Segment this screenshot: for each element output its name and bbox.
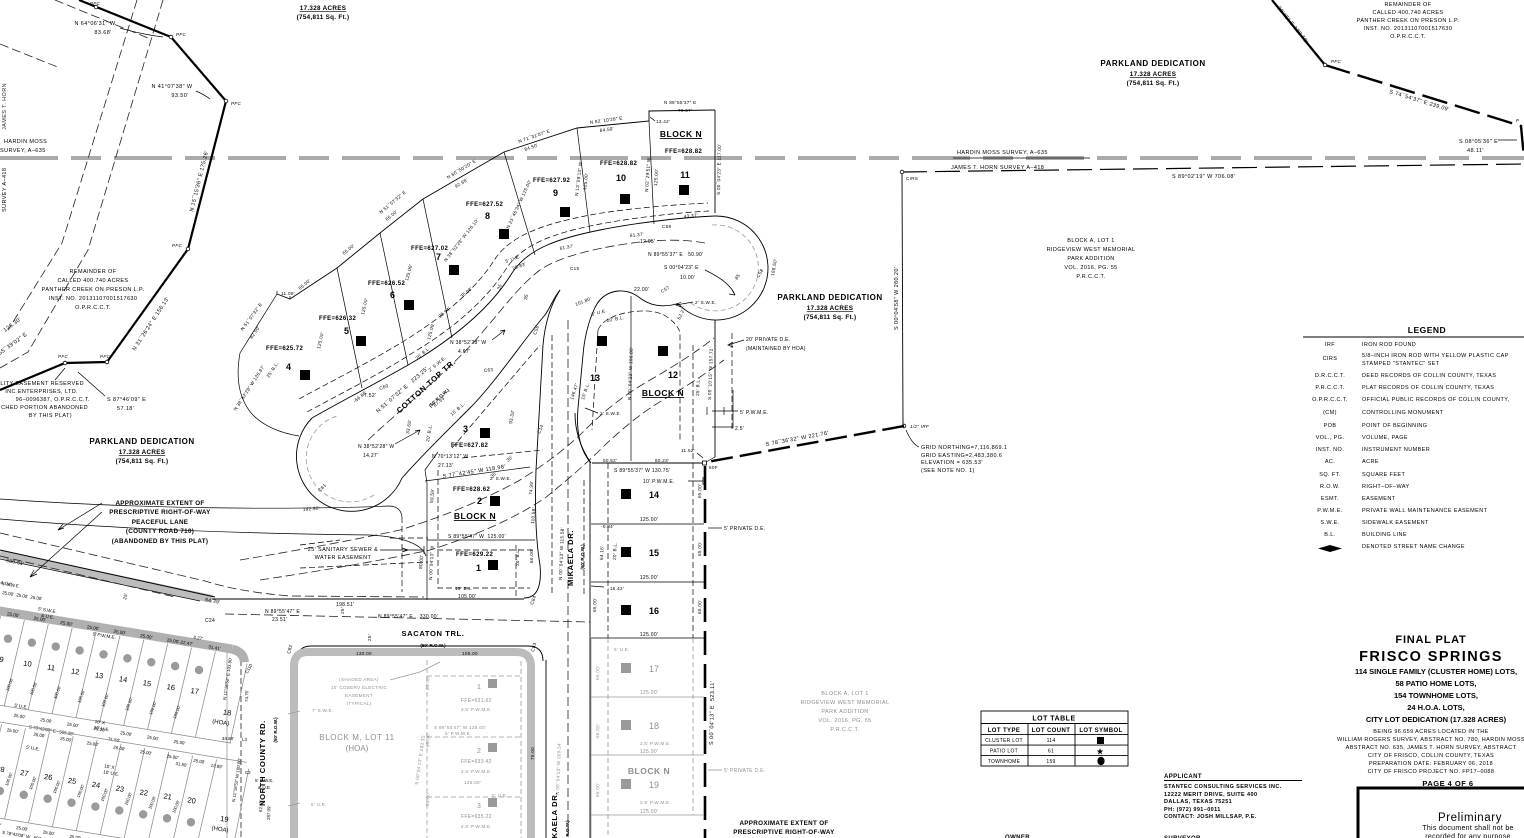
svg-text:60F: 60F: [709, 465, 718, 470]
svg-text:5' U.E.: 5' U.E.: [492, 793, 508, 798]
svg-text:15: 15: [142, 678, 152, 688]
svg-text:PFC: PFC: [90, 1, 100, 6]
svg-text:15: 15: [649, 548, 659, 558]
svg-text:12: 12: [668, 370, 678, 380]
svg-text:ABSTRACT NO. 635, JAMES T.: ABSTRACT NO. 635, JAMES T. HORN SURVEY, …: [1346, 745, 1517, 751]
svg-text:17: 17: [649, 664, 659, 674]
svg-text:CITY OF FRISCO, COLLIN COU: CITY OF FRISCO, COLLIN COUNTY, TEXAS: [1368, 753, 1494, 759]
svg-text:L3: L3: [242, 737, 247, 742]
svg-text:(TYPICAL): (TYPICAL): [347, 701, 372, 706]
svg-text:HARDIN MOSS: HARDIN MOSS: [4, 139, 47, 145]
svg-text:P.R.C.C.T.: P.R.C.C.T.: [830, 727, 859, 733]
svg-text:FFE=628.82: FFE=628.82: [600, 161, 637, 167]
svg-text:130.00: 130.00: [356, 651, 372, 656]
svg-text:C63: C63: [484, 367, 494, 373]
svg-text:LITY EASEMENT RESERVED: LITY EASEMENT RESERVED: [0, 381, 84, 387]
svg-text:DENOTED STREET NAME CHANGE: DENOTED STREET NAME CHANGE: [1362, 544, 1465, 550]
svg-text:(MAINTAINED BY HOA): (MAINTAINED BY HOA): [746, 346, 806, 352]
svg-text:FFE=629.22: FFE=629.22: [456, 552, 493, 558]
svg-text:SQUARE FEET: SQUARE FEET: [1362, 472, 1405, 478]
svg-text:S.W.E.: S.W.E.: [1320, 520, 1339, 526]
svg-text:APPROXIMATE EXTENT OF: APPROXIMATE EXTENT OF: [739, 820, 828, 827]
svg-text:WILLIAM ROGERS SURVEY, ABST: WILLIAM ROGERS SURVEY, ABSTRACT NO. 780,…: [1337, 737, 1524, 743]
svg-text:CLUSTER LOT: CLUSTER LOT: [985, 738, 1023, 744]
svg-text:CITY OF FRISCO PROJECT NO.: CITY OF FRISCO PROJECT NO. FP17–0088: [1368, 769, 1495, 775]
svg-text:N 70°13'12" W: N 70°13'12" W: [432, 454, 468, 460]
svg-text:PFC: PFC: [58, 354, 68, 359]
svg-text:2.5' P.W.M.E.: 2.5' P.W.M.E.: [461, 824, 492, 829]
svg-text:61: 61: [1048, 749, 1054, 755]
svg-text:LOT COUNT: LOT COUNT: [1032, 728, 1071, 734]
svg-text:(754,811 Sq. Ft.): (754,811 Sq. Ft.): [804, 314, 857, 321]
svg-text:S 00¯04'23" E 117.00': S 00¯04'23" E 117.00': [715, 144, 722, 195]
svg-text:5' PRIVATE D.E.: 5' PRIVATE D.E.: [724, 768, 765, 774]
svg-text:25' B.L.: 25' B.L.: [695, 378, 701, 396]
svg-text:-0.84': -0.84': [601, 524, 614, 529]
svg-text:11.52': 11.52': [681, 448, 695, 453]
svg-text:65.00': 65.00': [697, 484, 702, 498]
svg-text:105.00: 105.00: [462, 651, 478, 656]
svg-text:FFE=631.62: FFE=631.62: [461, 698, 492, 704]
svg-text:16: 16: [649, 606, 659, 616]
svg-text:(50' R.O.W.): (50' R.O.W.): [565, 820, 570, 838]
svg-text:1/2" IRF: 1/2" IRF: [910, 424, 930, 429]
svg-text:CIRS: CIRS: [906, 176, 918, 181]
svg-text:C2: C2: [245, 770, 251, 775]
svg-text:N 38°52'28" W: N 38°52'28" W: [358, 444, 394, 450]
svg-text:PANTHER CREEK ON PRESON L.: PANTHER CREEK ON PRESON L.P.: [1357, 18, 1460, 24]
svg-text:RIGHT–OF–WAY: RIGHT–OF–WAY: [1362, 484, 1410, 490]
svg-text:CONTACT: JOSH MILLSAP, P.E.: CONTACT: JOSH MILLSAP, P.E.: [1164, 814, 1257, 820]
svg-text:PH: (972) 991–0011: PH: (972) 991–0011: [1164, 807, 1221, 813]
svg-text:VOL., PG.: VOL., PG.: [1316, 435, 1345, 441]
svg-text:11.00': 11.00': [281, 291, 295, 296]
svg-text:(ABANDONED BY THIS PLAT): (ABANDONED BY THIS PLAT): [112, 538, 209, 545]
svg-text:D.R.C.C.T.: D.R.C.C.T.: [1315, 373, 1345, 379]
svg-text:65.00': 65.00': [425, 792, 430, 806]
svg-text:SURVEY, A–635: SURVEY, A–635: [0, 148, 46, 154]
svg-text:P.W.M.E.: P.W.M.E.: [1317, 508, 1342, 514]
svg-text:25.00': 25.00': [69, 834, 82, 838]
svg-text:S 89°55'47" W 125.00': S 89°55'47" W 125.00': [448, 534, 506, 540]
svg-text:N 41°07'38" W: N 41°07'38" W: [152, 84, 193, 90]
svg-text:IRON ROD FOUND: IRON ROD FOUND: [1362, 342, 1416, 348]
svg-text:(754,811 Sq. Ft.): (754,811 Sq. Ft.): [116, 458, 169, 465]
svg-text:10' COSERV ELECTRIC: 10' COSERV ELECTRIC: [331, 685, 388, 690]
svg-text:PFC: PFC: [231, 101, 241, 106]
svg-text:(754,811 Sq. Ft.): (754,811 Sq. Ft.): [297, 14, 350, 21]
svg-text:7' S.W.E.: 7' S.W.E.: [312, 708, 333, 713]
svg-text:INST. NO.: INST. NO.: [1316, 447, 1344, 453]
svg-text:20' B.L.: 20' B.L.: [515, 548, 520, 566]
svg-text:9: 9: [553, 188, 558, 198]
svg-text:CIRS: CIRS: [1323, 356, 1338, 362]
svg-text:FINAL PLAT: FINAL PLAT: [1395, 634, 1466, 646]
svg-text:FFE=625.72: FFE=625.72: [266, 346, 303, 352]
svg-text:58 PATIO HOME LOTS,: 58 PATIO HOME LOTS,: [1396, 679, 1477, 688]
svg-text:11: 11: [680, 170, 690, 180]
svg-text:FFE=633.42: FFE=633.42: [461, 759, 492, 765]
svg-text:65.00': 65.00': [595, 783, 600, 797]
svg-text:125.00': 125.00': [640, 690, 658, 696]
svg-text:3: 3: [477, 803, 481, 810]
svg-text:PFC: PFC: [176, 32, 186, 37]
svg-text:65.00': 65.00': [595, 724, 600, 738]
svg-text:O.P.R.C.C.T.: O.P.R.C.C.T.: [75, 305, 111, 311]
svg-text:S 08°05'36" E: S 08°05'36" E: [1459, 139, 1498, 145]
svg-text:125.00': 125.00': [640, 575, 658, 581]
svg-text:REMAINDER OF: REMAINDER OF: [1385, 2, 1432, 8]
svg-text:JAMES T. HORN SURVEY A–418: JAMES T. HORN SURVEY A–418: [951, 165, 1044, 171]
svg-text:11: 11: [47, 662, 56, 672]
svg-text:This document shall not be: This document shall not be: [1422, 825, 1513, 832]
svg-text:80.23': 80.23': [655, 458, 669, 463]
svg-text:114: 114: [1047, 738, 1056, 744]
svg-text:LOT TABLE: LOT TABLE: [1032, 716, 1075, 723]
svg-text:10' P.W.M.E.: 10' P.W.M.E.: [643, 479, 675, 485]
svg-text:5' U.E.: 5' U.E.: [614, 647, 630, 652]
svg-text:2.5' P.W.M.E.: 2.5' P.W.M.E.: [640, 800, 671, 805]
svg-text:2.5' P.W.M.E.: 2.5' P.W.M.E.: [640, 741, 671, 746]
svg-text:2: 2: [477, 496, 482, 506]
svg-text:114 SINGLE FAMILY (CLUSTER HOM: 114 SINGLE FAMILY (CLUSTER HOME) LOTS,: [1355, 667, 1517, 676]
svg-text:2' S.W.E.: 2' S.W.E.: [695, 300, 716, 305]
svg-text:(COUNTY ROAD 710): (COUNTY ROAD 710): [126, 528, 194, 535]
svg-text:LEGEND: LEGEND: [1408, 325, 1446, 335]
svg-text:AC.: AC.: [1325, 459, 1335, 465]
svg-text:74.76': 74.76': [244, 690, 249, 702]
svg-text:35: 35: [523, 294, 529, 301]
svg-text:16: 16: [166, 682, 176, 692]
svg-text:2.5' P.W.M.E.: 2.5' P.W.M.E.: [461, 769, 492, 774]
svg-text:EASEMENT: EASEMENT: [1362, 496, 1396, 502]
svg-text:CALLED 400.740 ACRES: CALLED 400.740 ACRES: [1373, 10, 1444, 16]
svg-text:5' U.E.: 5' U.E.: [311, 802, 327, 807]
svg-text:LOT TYPE: LOT TYPE: [988, 728, 1021, 734]
svg-text:5' P.W.M.E.: 5' P.W.M.E.: [445, 731, 472, 736]
svg-text:105.00': 105.00': [458, 594, 476, 600]
svg-text:OFFICIAL PUBLIC RECORDS OF: OFFICIAL PUBLIC RECORDS OF COLLIN COUNTY…: [1362, 397, 1510, 403]
svg-text:(50' R.O.W.): (50' R.O.W.): [273, 717, 278, 743]
svg-text:FFE=627.52: FFE=627.52: [466, 202, 503, 208]
svg-text:20' PRIVATE D.E.: 20' PRIVATE D.E.: [746, 337, 790, 343]
svg-text:FFE=627.92: FFE=627.92: [533, 178, 570, 184]
svg-text:-16.42': -16.42': [608, 586, 624, 591]
svg-text:17.328 ACRES: 17.328 ACRES: [1130, 71, 1176, 78]
svg-text:22.00': 22.00': [634, 287, 649, 293]
svg-text:17.328 ACRES: 17.328 ACRES: [300, 5, 346, 12]
svg-text:S 00¯04'13" E 523.11': S 00¯04'13" E 523.11': [708, 681, 716, 745]
svg-text:287.09': 287.09': [266, 805, 272, 820]
svg-text:SURVEY A–418: SURVEY A–418: [2, 168, 8, 212]
svg-text:SQ. FT.: SQ. FT.: [1319, 472, 1341, 478]
svg-text:27.13': 27.13': [438, 463, 453, 469]
svg-text:INSTRUMENT NUMBER: INSTRUMENT NUMBER: [1362, 447, 1430, 453]
svg-text:BLOCK A, LOT 1: BLOCK A, LOT 1: [821, 691, 868, 697]
svg-text:21: 21: [163, 791, 173, 801]
svg-text:4: 4: [286, 362, 291, 372]
svg-text:159: 159: [1046, 759, 1055, 765]
svg-text:75.00: 75.00: [530, 747, 535, 760]
svg-text:C15: C15: [570, 266, 579, 271]
svg-text:PARK ADDITION: PARK ADDITION: [821, 709, 868, 715]
svg-text:EASEMENT: EASEMENT: [345, 693, 373, 698]
svg-text:(CM): (CM): [1323, 410, 1337, 416]
svg-text:C58: C58: [662, 224, 671, 229]
svg-text:CONTROLLING MONUMENT: CONTROLLING MONUMENT: [1362, 410, 1444, 416]
svg-text:6: 6: [390, 290, 395, 300]
svg-text:P.R.C.C.T.: P.R.C.C.T.: [1315, 385, 1344, 391]
svg-text:BLOCK N: BLOCK N: [642, 388, 684, 398]
svg-text:PARK ADDITION: PARK ADDITION: [1067, 256, 1114, 262]
svg-text:PFC: PFC: [1331, 59, 1341, 64]
svg-text:20' B.L.: 20' B.L.: [612, 542, 618, 560]
svg-text:19: 19: [649, 780, 659, 790]
svg-text:93.50': 93.50': [171, 93, 188, 99]
svg-text:23.51': 23.51': [272, 617, 287, 623]
svg-text:B.L.: B.L.: [1324, 532, 1335, 538]
svg-text:10.00': 10.00': [680, 275, 695, 281]
svg-text:MIKAELA DR.: MIKAELA DR.: [550, 792, 559, 838]
svg-text:48.11': 48.11': [1467, 148, 1484, 154]
svg-text:SACATON TRL.: SACATON TRL.: [401, 629, 464, 638]
svg-text:70.67': 70.67': [678, 108, 692, 113]
svg-text:13: 13: [94, 670, 104, 680]
svg-text:125.00': 125.00': [640, 517, 658, 523]
svg-text:PARKLAND DEDICATION: PARKLAND DEDICATION: [89, 437, 194, 446]
svg-text:WATER EASEMENT: WATER EASEMENT: [315, 555, 372, 561]
svg-text:PRESCRIPTIVE RIGHT-OF-WAY: PRESCRIPTIVE RIGHT-OF-WAY: [733, 829, 835, 836]
svg-text:26: 26: [43, 772, 53, 782]
svg-text:BLOCK N: BLOCK N: [454, 511, 496, 521]
svg-text:PFC: PFC: [172, 243, 182, 248]
svg-text:BLOCK A, LOT 1: BLOCK A, LOT 1: [1067, 238, 1114, 244]
svg-text:20: 20: [187, 795, 197, 805]
svg-text:PANTHER CREEK ON PRESON L.: PANTHER CREEK ON PRESON L.P.: [42, 287, 145, 293]
svg-text:17.328 ACRES: 17.328 ACRES: [119, 449, 165, 456]
svg-text:1: 1: [476, 563, 481, 573]
svg-text:65.00': 65.00': [592, 598, 597, 612]
svg-text:JAMES T. HORN: JAMES T. HORN: [2, 83, 8, 130]
svg-text:SIDEWALK EASEMENT: SIDEWALK EASEMENT: [1362, 520, 1429, 526]
svg-text:18: 18: [222, 707, 232, 717]
svg-text:125.00': 125.00': [640, 809, 658, 815]
svg-text:DEED RECORDS OF COLLIN COU: DEED RECORDS OF COLLIN COUNTY, TEXAS: [1362, 373, 1496, 379]
svg-text:PREPARATION DATE: FEBRUARY: PREPARATION DATE: FEBRUARY 06, 2018: [1369, 761, 1493, 767]
svg-text:FFE=628.62: FFE=628.62: [453, 487, 490, 493]
svg-text:N 89°55'37" E: N 89°55'37" E: [664, 100, 697, 105]
svg-text:STAMPED "STANTEC" SET: STAMPED "STANTEC" SET: [1362, 361, 1440, 367]
svg-text:LOT SYMBOL: LOT SYMBOL: [1079, 728, 1122, 734]
svg-text:198.51': 198.51': [336, 602, 354, 608]
svg-text:IRF: IRF: [1325, 342, 1335, 348]
svg-text:INST. NO. 20131107001517630: INST. NO. 20131107001517630: [1364, 26, 1453, 32]
svg-text:BLOCK N: BLOCK N: [660, 129, 702, 139]
svg-text:5' PRIVATE D.E.: 5' PRIVATE D.E.: [724, 526, 765, 532]
svg-text:5' S.W.E.: 5' S.W.E.: [255, 778, 274, 783]
svg-text:PATIO LOT: PATIO LOT: [990, 749, 1018, 755]
svg-text:VOL. 2016, PG. 55: VOL. 2016, PG. 55: [818, 718, 871, 724]
svg-text:& U.E.: & U.E.: [258, 785, 271, 790]
svg-text:57.18': 57.18': [117, 406, 134, 412]
svg-text:2.5' P.W.M.E.: 2.5' P.W.M.E.: [461, 707, 492, 712]
svg-text:★: ★: [1096, 747, 1104, 757]
svg-text:MIKAELA DR.: MIKAELA DR.: [566, 530, 575, 586]
svg-text:N 89°55'37" E 50.90': N 89°55'37" E 50.90': [648, 252, 703, 258]
svg-text:5: 5: [344, 326, 349, 336]
svg-text:BY THIS PLAT): BY THIS PLAT): [29, 413, 72, 419]
svg-text:8: 8: [485, 211, 490, 221]
svg-text:125.00': 125.00': [464, 780, 481, 785]
svg-text:22: 22: [139, 788, 149, 798]
svg-text:125.00': 125.00': [640, 632, 658, 638]
svg-text:14.27': 14.27': [363, 453, 378, 459]
svg-text:CALLED 400.740 ACRES: CALLED 400.740 ACRES: [58, 278, 129, 284]
svg-text:27: 27: [20, 768, 30, 778]
svg-text:50.52': 50.52': [603, 458, 617, 463]
svg-text:N 64°06'31" W: N 64°06'31" W: [75, 21, 116, 27]
svg-text:4.67': 4.67': [458, 349, 470, 355]
svg-text:S 87°46'09" E: S 87°46'09" E: [107, 397, 146, 403]
svg-text:CHED PORTION ABANDONED: CHED PORTION ABANDONED: [1, 405, 88, 411]
svg-text:2: 2: [477, 748, 481, 755]
svg-text:ESMT.: ESMT.: [1321, 496, 1339, 502]
svg-text:INC ENTERPRISES, LTD.: INC ENTERPRISES, LTD.: [5, 389, 78, 395]
svg-text:BLOCK M, LOT 11: BLOCK M, LOT 11: [319, 733, 394, 742]
svg-text:23: 23: [115, 784, 125, 794]
svg-text:(HOA): (HOA): [346, 744, 369, 753]
svg-text:BEING 96.659 ACRES LOCATED: BEING 96.659 ACRES LOCATED IN THE: [1373, 729, 1488, 735]
svg-text:recorded for any purpose: recorded for any purpose: [1425, 834, 1510, 838]
svg-text:17: 17: [190, 686, 200, 696]
svg-text:PRESCRIPTIVE RIGHT-OF-WAY: PRESCRIPTIVE RIGHT-OF-WAY: [109, 509, 211, 516]
svg-text:TOWNHOME: TOWNHOME: [988, 759, 1021, 765]
svg-text:60.00': 60.00': [529, 549, 534, 563]
svg-text:5' P.W.M.E.: 5' P.W.M.E.: [740, 410, 769, 416]
svg-text:12222 MERIT DRIVE, SUITE 4: 12222 MERIT DRIVE, SUITE 400: [1164, 792, 1257, 798]
svg-text:O.P.R.C.C.T.: O.P.R.C.C.T.: [1312, 397, 1348, 403]
svg-text:12.42': 12.42': [656, 119, 670, 124]
svg-text:RIDGEVIEW WEST MEMORIAL: RIDGEVIEW WEST MEMORIAL: [801, 700, 890, 706]
svg-text:PFC: PFC: [100, 354, 110, 359]
svg-text:65.00': 65.00': [697, 542, 702, 556]
svg-text:N 38°52'28" W: N 38°52'28" W: [450, 340, 486, 346]
svg-text:POB: POB: [1324, 423, 1337, 429]
svg-text:15' B.L.: 15' B.L.: [455, 586, 473, 591]
svg-text:NORTH COUNTY RD.: NORTH COUNTY RD.: [258, 720, 267, 806]
svg-text:13: 13: [590, 373, 600, 383]
svg-text:(754,811 Sq. Ft.): (754,811 Sq. Ft.): [1127, 80, 1180, 87]
svg-text:FRISCO SPRINGS: FRISCO SPRINGS: [1359, 649, 1503, 665]
svg-text:19: 19: [220, 814, 230, 824]
svg-text:S 00°04'23" E: S 00°04'23" E: [664, 265, 699, 271]
svg-text:RIDGEVIEW WEST MEMORIAL: RIDGEVIEW WEST MEMORIAL: [1047, 247, 1136, 253]
svg-text:N 89°55'47" E: N 89°55'47" E: [265, 609, 300, 615]
svg-text:P.R.C.C.T.: P.R.C.C.T.: [1076, 274, 1105, 280]
svg-text:FFE=626.52: FFE=626.52: [368, 281, 405, 287]
svg-text:14: 14: [649, 490, 659, 500]
svg-text:R.O.W.: R.O.W.: [1320, 484, 1340, 490]
svg-text:FFE=626.32: FFE=626.32: [319, 316, 356, 322]
svg-text:(SEE NOTE NO. 1): (SEE NOTE NO. 1): [921, 468, 975, 474]
svg-text:VOL. 2016, PG. 55: VOL. 2016, PG. 55: [1064, 265, 1117, 271]
svg-text:BLOCK N: BLOCK N: [628, 766, 670, 776]
svg-text:7: 7: [436, 252, 441, 262]
svg-text:(50' R.O.W.): (50' R.O.W.): [580, 544, 585, 570]
svg-text:S 89°02'19" W 706.08': S 89°02'19" W 706.08': [1172, 174, 1235, 180]
svg-text:25': 25': [367, 634, 372, 641]
svg-text:PARKLAND DEDICATION: PARKLAND DEDICATION: [777, 293, 882, 302]
svg-text:12: 12: [70, 666, 80, 676]
svg-text:REMAINDER OF: REMAINDER OF: [70, 269, 117, 275]
svg-text:10: 10: [23, 659, 33, 669]
svg-text:FFE=627.82: FFE=627.82: [451, 443, 488, 449]
svg-text:34.88': 34.88': [222, 736, 234, 741]
svg-text:65.00': 65.00': [697, 600, 702, 614]
svg-text:14: 14: [118, 674, 128, 684]
svg-text:25': 25': [340, 607, 345, 614]
svg-text:S 00°04'58" W 280.20': S 00°04'58" W 280.20': [894, 267, 900, 330]
svg-text:12.05': 12.05': [640, 239, 655, 245]
svg-text:Preliminary: Preliminary: [1438, 812, 1502, 824]
svg-text:FFE=635.22: FFE=635.22: [461, 814, 492, 820]
svg-text:ACRE: ACRE: [1362, 459, 1379, 465]
svg-text:62.58': 62.58': [258, 800, 263, 812]
svg-text:POINT OF BEGINNING: POINT OF BEGINNING: [1362, 423, 1427, 429]
svg-text:PEACEFUL LANE: PEACEFUL LANE: [132, 519, 189, 526]
svg-text:65.00': 65.00': [425, 733, 430, 747]
svg-text:64.16': 64.16': [599, 546, 604, 560]
svg-text:PARKLAND DEDICATION: PARKLAND DEDICATION: [1100, 59, 1205, 68]
svg-text:25' SANITARY SEWER &: 25' SANITARY SEWER &: [308, 547, 379, 553]
svg-text:17.328 ACRES: 17.328 ACRES: [807, 305, 853, 312]
svg-text:S 89°55'37" W 130.75': S 89°55'37" W 130.75': [614, 468, 670, 474]
svg-text:83.68': 83.68': [94, 30, 111, 36]
svg-text:APPROXIMATE EXTENT OF: APPROXIMATE EXTENT OF: [115, 500, 204, 507]
svg-text:DALLAS, TEXAS 75251: DALLAS, TEXAS 75251: [1164, 799, 1232, 805]
svg-text:VOLUME, PAGE: VOLUME, PAGE: [1362, 435, 1408, 441]
svg-text:24: 24: [91, 780, 101, 790]
svg-text:ELEVATION = 635.53': ELEVATION = 635.53': [921, 460, 983, 466]
svg-text:FFE=628.82: FFE=628.82: [665, 149, 702, 155]
svg-text:(SHADED AREA): (SHADED AREA): [339, 677, 379, 682]
svg-text:154 TOWNHOME LOTS,: 154 TOWNHOME LOTS,: [1394, 691, 1478, 700]
svg-text:18: 18: [649, 721, 659, 731]
svg-text:STANTEC CONSULTING SERVICES: STANTEC CONSULTING SERVICES INC.: [1164, 784, 1282, 790]
svg-text:2' S.W.E.: 2' S.W.E.: [600, 411, 621, 416]
svg-text:1: 1: [477, 684, 481, 691]
svg-text:PRIVATE WALL MAINTENANCE EA: PRIVATE WALL MAINTENANCE EASEMENT: [1362, 508, 1488, 514]
svg-text:PLAT RECORDS OF COLLIN COU: PLAT RECORDS OF COLLIN COUNTY, TEXAS: [1362, 385, 1494, 391]
svg-text:APPLICANT: APPLICANT: [1164, 774, 1202, 780]
svg-text:24 H.O.A. LOTS,: 24 H.O.A. LOTS,: [1407, 703, 1465, 712]
svg-text:C24: C24: [205, 618, 215, 624]
svg-text:25: 25: [67, 776, 77, 786]
svg-text:S 89°55'47" W 125.00': S 89°55'47" W 125.00': [434, 725, 486, 730]
svg-text:(50' R.O.W.): (50' R.O.W.): [420, 643, 446, 648]
svg-text:GRID NORTHING=7,116,869.1: GRID NORTHING=7,116,869.1: [921, 445, 1007, 451]
svg-text:10: 10: [616, 173, 626, 183]
svg-text:HARDIN MOSS SURVEY, A–635: HARDIN MOSS SURVEY, A–635: [957, 150, 1048, 156]
svg-text:CITY LOT DEDICATION (17.328 AC: CITY LOT DEDICATION (17.328 ACRES): [1366, 715, 1507, 724]
svg-text:O.P.R.C.C.T.: O.P.R.C.C.T.: [1390, 34, 1426, 40]
svg-text:3: 3: [463, 424, 468, 434]
svg-text:N 89°55'47" E 330.00': N 89°55'47" E 330.00': [378, 614, 438, 620]
svg-text:125.00': 125.00': [640, 749, 658, 755]
svg-text:BUILDING LINE: BUILDING LINE: [1362, 532, 1407, 538]
svg-text:FFE=627.02: FFE=627.02: [411, 246, 448, 252]
svg-text:96–0096387, O.P.R.C.C.T.: 96–0096387, O.P.R.C.C.T.: [16, 397, 90, 403]
